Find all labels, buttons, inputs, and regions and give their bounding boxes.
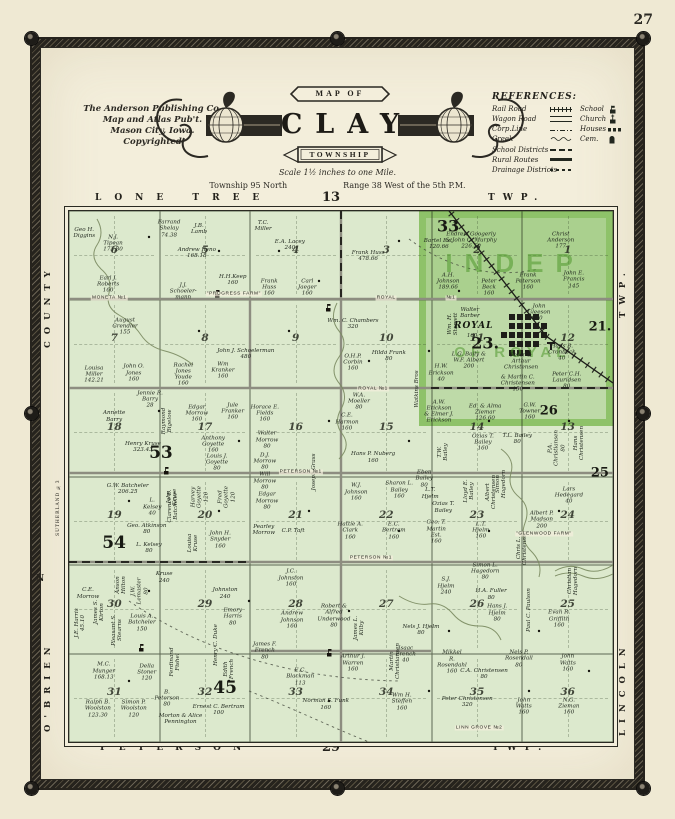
- parcel-label: B.Peterson80: [154, 690, 179, 709]
- road-label: PETERSON №1: [349, 556, 393, 561]
- parcel-label: LouisaMiller142.21: [84, 365, 104, 384]
- parcel-label: O.H.P.Corbin160: [343, 353, 362, 372]
- edge-section-number-top: 13: [322, 190, 340, 205]
- road-label: №1: [445, 296, 456, 301]
- parcel-label: J.C.Johnston160: [278, 569, 303, 588]
- reference-row: School Districts: [492, 145, 644, 155]
- parcel-label: G.W.Towner160: [519, 402, 540, 421]
- border-corner-boss: [25, 32, 38, 45]
- reference-label: School Districts: [492, 145, 550, 155]
- district-number: 26: [540, 403, 558, 418]
- parcel-label: Hattie A.Clark160: [338, 522, 363, 541]
- church-icon: [608, 114, 630, 124]
- parcel-label: Simon P.Woolston120: [121, 700, 147, 719]
- parcel-label: T.L. Bailey80: [503, 433, 532, 446]
- reference-label: Rail Road: [492, 104, 550, 114]
- parcel-label: T.W.Bailey: [437, 443, 450, 461]
- reference-row: Rail RoadSchool: [492, 104, 644, 114]
- border-corner-boss: [637, 782, 650, 795]
- title-township-word: TOWNSHIP: [298, 149, 382, 161]
- road-label: MONETA №1: [91, 296, 127, 301]
- parcel-label: H.A. Fuller80: [475, 588, 506, 601]
- parcel-label: ChristAnderson177: [547, 231, 574, 250]
- reference-row: Rural Routes: [492, 155, 644, 165]
- parcel-label: Geo H.Diggins: [73, 227, 95, 240]
- parcel-label: Paul C. Paulson: [526, 588, 532, 632]
- parcel-label: Jennie R.Barry28: [137, 390, 163, 409]
- road-label: "GLENWOOD FARM": [515, 532, 573, 537]
- parcel-label: Ernest C. Bertram100: [193, 704, 245, 717]
- rural-route-symbol: [550, 158, 572, 161]
- parcel-label: E.A. Lacey240: [275, 239, 305, 252]
- railroad-symbol: [550, 107, 572, 112]
- district-number: 21.: [589, 319, 612, 334]
- parcel-label: LarsHedegard40: [555, 486, 583, 505]
- parcel-label: HarveyGoyette120: [191, 486, 210, 508]
- parcel-label: Norman S. Funk160: [302, 698, 349, 711]
- parcel-label: SimonHagedorn: [495, 470, 508, 498]
- parcel-label: FrankHuss160: [261, 279, 278, 298]
- parcel-label: John H.Snyder160: [210, 531, 231, 550]
- parcel-label: LouisaKruse: [187, 534, 200, 553]
- parcel-label: JuleFranker160: [221, 402, 244, 421]
- district-number: 45: [213, 678, 237, 698]
- references-legend: REFERENCES: Rail RoadSchoolWagon RoadChu…: [492, 92, 644, 175]
- parcel-label: Robert &AlfredUnderwood80: [317, 604, 350, 629]
- parcel-label: L.T.Hjelm: [422, 487, 439, 500]
- parcel-label: AnnetteBarry: [103, 410, 125, 423]
- school-icon: [608, 105, 630, 114]
- reference-row: CreekCem.: [492, 134, 644, 144]
- parcel-label: Louis J.Goyette80: [206, 453, 228, 472]
- adjacent-county-left-name: O'BRIEN: [43, 552, 53, 732]
- parcel-label: Johnston240: [213, 587, 238, 600]
- reference-label: Rural Routes: [492, 155, 550, 165]
- adjacent-county-left: COUNTY: [43, 238, 53, 348]
- parcel-label: L.Kelsey40: [143, 498, 161, 517]
- parcel-label: & Martin C.Christensen150: [501, 374, 535, 393]
- parcel-label: HansChristensen: [573, 425, 586, 459]
- border-edge-boss: [637, 407, 650, 420]
- parcel-label: Ed. & AlmaZiemar126.60: [469, 403, 501, 422]
- parcel-label: Nels P.Rosendall80: [505, 650, 533, 669]
- parcel-label: Peter &ArthurChristensen: [504, 352, 538, 371]
- creek-symbol: [550, 136, 572, 142]
- reference-label: Wagon Road: [492, 114, 550, 124]
- parcel-label: AndrewJohnson160: [281, 611, 304, 630]
- parcel-label: John J. Schoelerman480: [217, 348, 274, 361]
- parcel-label: James L.Kilby: [353, 616, 366, 640]
- parcel-label: W.J.Johnson160: [345, 483, 368, 502]
- parcel-label: James F.French80: [253, 642, 277, 661]
- border-corner-boss: [25, 782, 38, 795]
- parcel-label: ChristianHagedorn: [566, 567, 579, 595]
- parcel-label: Watkins Bros: [414, 370, 420, 407]
- adjacent-township-right-suffix: TWP.: [618, 238, 628, 318]
- border-edge-boss: [331, 32, 344, 45]
- town-acreage: 160: [467, 333, 478, 339]
- plat-map: 6543217891011121817161514131920212223243…: [68, 210, 614, 743]
- parcel-label: DellaStoner120: [137, 664, 156, 683]
- parcel-label: N.J.Tipean173.80: [103, 235, 123, 254]
- parcel-label: A.W.Erickson& Elmer J.Erickson: [424, 399, 453, 424]
- road-label: ROYAL №1: [357, 386, 389, 391]
- road-label: PETERSON №1: [279, 469, 323, 474]
- parcel-label: EbenBailey80: [415, 470, 433, 489]
- title-map-of: MAP OF: [298, 87, 382, 101]
- reference-label: Corp.Line: [492, 124, 550, 134]
- town-label-royal: ROYAL: [454, 321, 493, 331]
- parcel-label: Wm H.Steffen160: [392, 693, 412, 712]
- parcel-label: EdgarMorrow80: [256, 492, 279, 511]
- parcel-label: G.W. Batcheler206.25: [107, 483, 149, 496]
- reference-row: Drainage Districts: [492, 165, 644, 175]
- parcel-label: Sharon L.Bailey160: [385, 481, 413, 500]
- adjacent-township-bottom: PETERSON: [100, 743, 253, 753]
- parcel-label: C.P. Taft: [282, 528, 305, 534]
- parcel-label: Frank Huss478.66: [352, 250, 385, 263]
- parcel-label: C.E.Harmon160: [335, 413, 358, 432]
- parcel-label: AugustGrendler155: [112, 317, 137, 336]
- parcel-label: Earl J.Roberts160: [97, 275, 119, 294]
- parcel-label: EdithFrench: [223, 659, 236, 679]
- parcel-label: IsaacFrench40: [396, 646, 416, 665]
- parcel-label: Lloyd E.Bailey: [463, 480, 476, 503]
- district-number: 25: [591, 466, 609, 481]
- parcel-label: Wm. C. Chambers320: [327, 317, 378, 330]
- parcel-label: AnsonHilton: [114, 577, 127, 595]
- border-edge-boss: [25, 407, 38, 420]
- page-number: 27: [634, 12, 653, 28]
- parcel-label: D.J.Morrow80: [254, 452, 277, 471]
- parcel-label: AnthonyGoyette160: [201, 435, 225, 454]
- school-district-symbol: [550, 149, 572, 151]
- parcel-label: Evan R.Griffith160: [548, 610, 570, 629]
- north-indicator: N: [36, 574, 44, 584]
- parcel-label: Geo. Atkinson80: [127, 522, 166, 535]
- title-township-name: CLAY: [238, 110, 442, 140]
- road-label: "PROGRESS FARM": [206, 291, 262, 296]
- parcel-label: John E.Francis145: [563, 271, 584, 290]
- parcel-label: RaymondBigelow: [161, 407, 174, 434]
- road-label: ROYAL: [376, 296, 397, 301]
- parcel-label: Andrew Reno168.18: [178, 247, 216, 260]
- parcel-label: PearleyMorrow: [252, 523, 275, 536]
- reference-label: Cem.: [580, 134, 608, 144]
- adjacent-township-top: LONE TREE: [95, 193, 272, 203]
- road-label: LINN GROVE №2: [455, 726, 504, 731]
- reference-label: School: [580, 104, 608, 114]
- road-label-sutherland: SUTHERLAND №3: [56, 452, 61, 536]
- parcel-label: Henry C. Duke: [213, 624, 219, 666]
- reference-label: Creek: [492, 134, 550, 144]
- parcel-label: Hans J.Hjelm80: [487, 604, 507, 623]
- parcel-label: James S.Kirton: [93, 600, 106, 624]
- references-title: REFERENCES:: [492, 92, 644, 102]
- parcel-label: S.J.Hjelm240: [437, 577, 454, 596]
- wagon-road-symbol: [550, 116, 572, 122]
- parcel-label: JohnKruse: [166, 488, 179, 505]
- district-number: 54: [102, 533, 126, 553]
- parcel-label: Wm. H.Starrett: [447, 312, 460, 335]
- parcel-label: C.E.Morrow: [77, 587, 100, 600]
- adjacent-township-bottom-suffix: TWP.: [492, 743, 549, 753]
- reference-row: Wagon RoadChurch: [492, 114, 644, 124]
- parcel-label: C.A. Christensen80: [460, 668, 508, 681]
- parcel-label: Ralph B.Woolston123.30: [85, 700, 111, 719]
- parcel-label: P.A.Christiansen80: [548, 430, 567, 466]
- township-range-line: Township 95 North Range 38 West of the 5…: [0, 181, 675, 190]
- parcel-label: L.G. Baily &W.F. Albert200: [452, 351, 486, 370]
- reference-label: Church: [580, 114, 608, 124]
- parcel-label: Hans P. Nuberg160: [351, 451, 395, 464]
- parcel-label: Ozias T.Bailey: [432, 501, 454, 514]
- border-corner-boss: [637, 32, 650, 45]
- parcel-label: J.B.Lamb: [191, 223, 207, 236]
- parcel-label: John O.Jones160: [123, 364, 144, 383]
- adjacent-township-right: LINCOLN: [618, 556, 628, 736]
- reference-row: Corp.LineHouses: [492, 124, 644, 134]
- globe-icon: [437, 92, 471, 142]
- parcel-label: PeterBeck160: [481, 279, 496, 298]
- parcel-label: N.G.Zieman160: [558, 698, 579, 717]
- parcel-label: WalterBarber: [460, 307, 480, 320]
- parcel-label: Peter C.H.Lauridsen80: [552, 372, 581, 391]
- parcel-label: Horace E.Fields160: [251, 404, 279, 423]
- parcel-label: H.H.Keep160: [219, 274, 247, 287]
- parcel-label: Albert P.Madson200: [530, 511, 554, 530]
- cemetery-icon: [608, 135, 630, 144]
- parcel-label: L.T.Hjelm160: [472, 521, 489, 540]
- parcel-label: M.C.Munger168.13: [93, 662, 116, 681]
- parcel-label: T.C.Miller: [255, 220, 272, 233]
- reference-label: Houses: [580, 124, 608, 134]
- parcel-label: A.H.Johnson189.66: [437, 272, 460, 291]
- parcel-label: Arthur J.Warren160: [341, 654, 365, 673]
- parcel-label: Hans B.Cronbeck40: [548, 343, 575, 362]
- parcel-label: FarrandShelay74.38: [158, 220, 181, 239]
- parcel-label: FrankPeterson160: [516, 272, 541, 291]
- parcel-label: FredGoyette120: [217, 486, 236, 508]
- border-edge-boss: [331, 782, 344, 795]
- parcel-label: WmKranker160: [211, 361, 234, 380]
- parcel-label: J.W.Lemaster80: [130, 577, 149, 604]
- parcel-label: Bartel Est.120.66: [424, 238, 454, 251]
- parcel-label: Geo. T.MartinEst.160: [426, 520, 445, 545]
- parcel-label: Hilda Frank80: [372, 350, 406, 363]
- reference-label: Drainage Districts: [492, 165, 550, 175]
- parcel-label: Pleasant S.Stearns: [111, 615, 124, 646]
- parcel-label: Henry Kruse323.43: [125, 441, 161, 454]
- parcel-label: J.J.Schoeler-mann: [170, 282, 197, 301]
- parcel-label: FerdinandFishel: [169, 648, 182, 677]
- drainage-district-symbol: [550, 169, 572, 171]
- parcel-label: H.W.Erickson40: [429, 364, 454, 383]
- parcel-label: J.E. Harris45.10: [74, 608, 87, 637]
- houses-icon: [608, 127, 630, 132]
- parcel-label: Ozias T.Bailey160: [472, 433, 494, 452]
- township-number: Township 95 North: [209, 181, 287, 190]
- parcel-label: EdgarMorrow160: [186, 404, 209, 423]
- parcel-label: WillMorrow80: [254, 472, 277, 491]
- parcel-label: L. Kelsey80: [136, 542, 162, 555]
- parcel-label: W.A.Moeller80: [348, 392, 370, 411]
- parcel-label: Simon L.Hagedorn80: [471, 562, 499, 581]
- parcel-label: RachelJonesYoude160: [173, 362, 193, 387]
- parcel-label: E.C.Blackman113: [286, 668, 314, 687]
- parcel-label: WalterMorrow80: [256, 431, 279, 450]
- adjacent-township-top-suffix: TWP.: [488, 193, 545, 203]
- parcel-label: EmoryHarris80: [223, 608, 242, 627]
- parcel-label: CarlJaeger160: [298, 279, 316, 298]
- atlas-page: { "page": {"number": "27"}, "publisher":…: [0, 0, 675, 819]
- parcel-label: JohnGleeson40: [528, 304, 551, 323]
- parcel-label: JohnWatts160: [560, 654, 576, 673]
- parcel-label: Kruse240: [156, 571, 173, 584]
- parcel-label: JohnWatts160: [516, 698, 532, 717]
- range-number: Range 38 West of the 5th P.M.: [343, 181, 465, 190]
- parcel-label: Louis A.Batcheler150: [128, 614, 156, 633]
- parcel-label: Peter Christensen320: [442, 696, 493, 709]
- parcel-label: E.C.Bertram160: [382, 522, 406, 541]
- parcel-label: Nels J. Hjelm80: [402, 624, 439, 637]
- corp-line-symbol: [550, 130, 572, 131]
